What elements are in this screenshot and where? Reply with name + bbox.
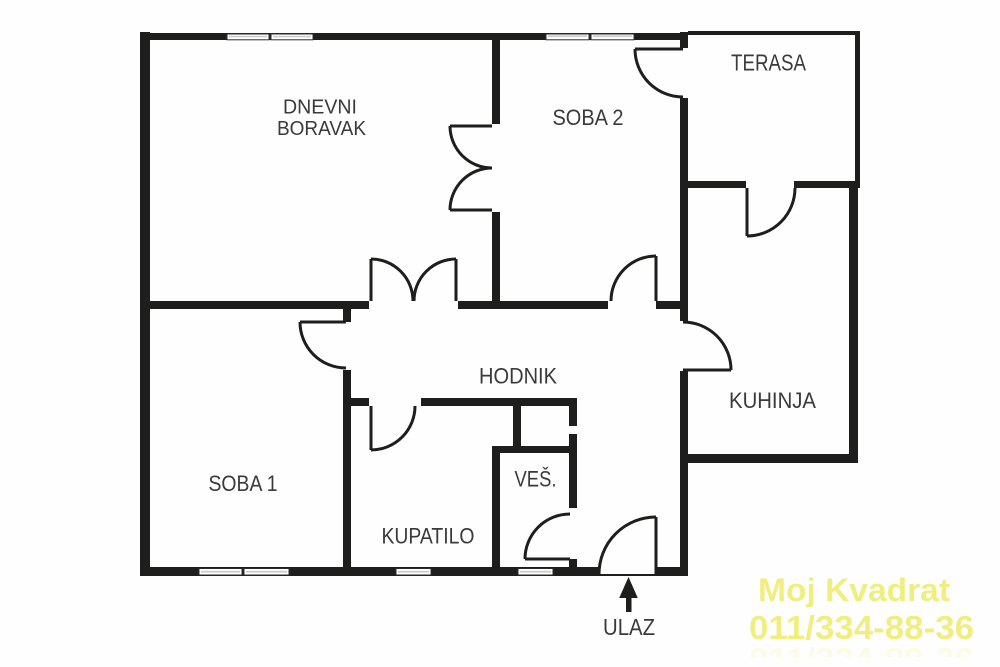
- svg-text:ULAZ: ULAZ: [603, 614, 655, 640]
- svg-text:SOBA 1: SOBA 1: [209, 471, 278, 496]
- svg-text:VEŠ.: VEŠ.: [515, 467, 557, 492]
- svg-text:SOBA 2: SOBA 2: [553, 105, 624, 130]
- svg-text:Moj Kvadrat: Moj Kvadrat: [758, 572, 950, 608]
- svg-text:DNEVNI: DNEVNI: [283, 97, 357, 119]
- svg-text:KUHINJA: KUHINJA: [729, 388, 816, 413]
- svg-text:KUPATILO: KUPATILO: [382, 524, 475, 549]
- svg-text:TERASA: TERASA: [731, 50, 807, 76]
- svg-text:BORAVAK: BORAVAK: [277, 118, 367, 140]
- svg-text:HODNIK: HODNIK: [479, 364, 557, 389]
